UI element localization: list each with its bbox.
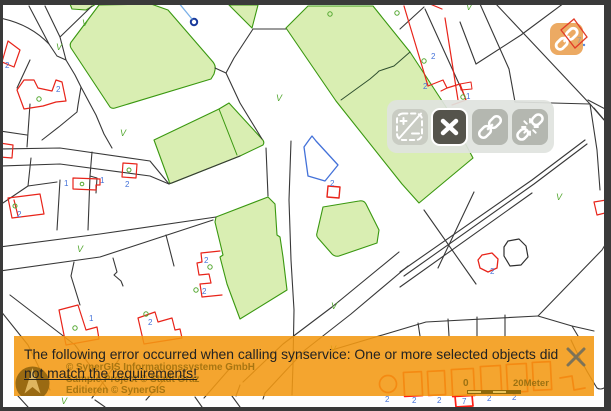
svg-text:2: 2 [202, 287, 207, 296]
svg-text:V: V [556, 192, 563, 202]
svg-text:2: 2 [490, 267, 495, 276]
svg-text:2: 2 [204, 256, 209, 265]
svg-text:2: 2 [423, 82, 428, 91]
svg-text:7: 7 [577, 36, 582, 45]
svg-text:2: 2 [431, 52, 436, 61]
svg-text:2: 2 [17, 210, 22, 219]
svg-text:V: V [77, 244, 84, 254]
svg-text:1: 1 [64, 179, 69, 188]
svg-text:2: 2 [125, 180, 130, 189]
svg-text:2: 2 [330, 179, 335, 188]
svg-text:2: 2 [5, 61, 10, 70]
svg-text:V: V [331, 301, 338, 311]
svg-text:7: 7 [462, 397, 467, 406]
svg-text:V: V [120, 128, 127, 138]
svg-text:1: 1 [100, 176, 105, 185]
svg-text:V: V [82, 18, 89, 28]
svg-text:2: 2 [385, 395, 390, 404]
svg-text:2: 2 [148, 318, 153, 327]
svg-text:V: V [61, 396, 68, 406]
svg-text:1: 1 [89, 314, 94, 323]
svg-text:2: 2 [412, 396, 417, 405]
svg-text:2: 2 [56, 85, 61, 94]
svg-text:V: V [466, 4, 473, 12]
svg-text:2: 2 [437, 396, 442, 405]
svg-text:V: V [276, 93, 283, 103]
svg-text:V: V [56, 42, 63, 52]
